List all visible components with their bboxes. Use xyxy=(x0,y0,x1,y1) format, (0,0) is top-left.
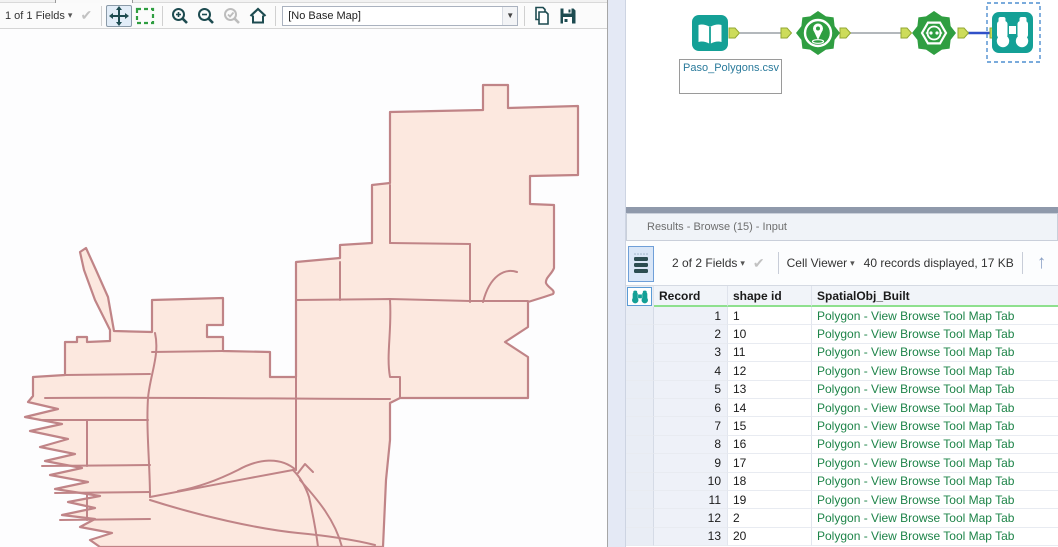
zoom-out-icon xyxy=(196,6,216,26)
chevron-down-icon[interactable]: ▾ xyxy=(68,10,73,21)
fields-dropdown-label[interactable]: 1 of 1 Fields xyxy=(5,10,65,22)
table-cell: 4 xyxy=(654,362,728,380)
table-cell xyxy=(626,325,654,343)
home-icon xyxy=(248,6,268,26)
results-toolbar: 2 of 2 Fields ▾ ✔ Cell Viewer ▾ 40 recor… xyxy=(626,241,1058,286)
polygon-map xyxy=(0,29,607,547)
basemap-value: [No Base Map] xyxy=(283,10,361,22)
toolbar-separator xyxy=(524,6,525,26)
table-cell: 3 xyxy=(654,344,728,362)
table-cell xyxy=(626,344,654,362)
table-cell xyxy=(626,307,654,325)
spatial-link-cell[interactable]: Polygon - View Browse Tool Map Tab xyxy=(812,491,1058,509)
table-cell: 1 xyxy=(654,307,728,325)
basemap-dropdown[interactable]: [No Base Map] ▼ xyxy=(282,6,518,26)
spatial-link-cell[interactable]: Polygon - View Browse Tool Map Tab xyxy=(812,436,1058,454)
table-cell: 18 xyxy=(728,473,812,491)
spatial-link-cell[interactable]: Polygon - View Browse Tool Map Tab xyxy=(812,381,1058,399)
chevron-down-icon[interactable]: ▼ xyxy=(502,7,517,25)
save-button[interactable] xyxy=(555,5,581,27)
table-cell: 2 xyxy=(654,325,728,343)
table-cell: 5 xyxy=(654,381,728,399)
records-view-icon xyxy=(633,252,649,276)
table-cell: 16 xyxy=(728,436,812,454)
chevron-down-icon[interactable]: ▾ xyxy=(740,258,745,269)
table-cell: 1 xyxy=(728,307,812,325)
results-title: Results - Browse (15) - Input xyxy=(627,221,787,233)
results-table: Record shape id SpatialObj_Built 11Polyg… xyxy=(626,286,1058,547)
zoom-out-button[interactable] xyxy=(193,5,219,27)
column-header-record[interactable]: Record xyxy=(654,286,728,307)
copy-icon xyxy=(532,6,552,26)
table-cell: 2 xyxy=(728,509,812,527)
workflow-canvas[interactable]: Paso_Polygons.csv xyxy=(626,0,1058,207)
spatial-link-cell[interactable]: Polygon - View Browse Tool Map Tab xyxy=(812,509,1058,527)
table-cell: 15 xyxy=(728,417,812,435)
save-icon xyxy=(558,6,578,26)
table-cell xyxy=(626,454,654,472)
pan-tool-button[interactable] xyxy=(106,5,132,27)
output-anchor[interactable] xyxy=(729,28,740,38)
table-cell: 10 xyxy=(728,325,812,343)
table-cell: 20 xyxy=(728,528,812,546)
results-table-body: 11Polygon - View Browse Tool Map Tab210P… xyxy=(626,307,1058,546)
zoom-selection-button[interactable] xyxy=(132,5,158,27)
table-cell: 7 xyxy=(654,417,728,435)
spatial-link-cell[interactable]: Polygon - View Browse Tool Map Tab xyxy=(812,307,1058,325)
table-cell: 8 xyxy=(654,436,728,454)
copy-button[interactable] xyxy=(529,5,555,27)
table-cell xyxy=(626,399,654,417)
zoom-extent-icon xyxy=(222,6,242,26)
map-toolbar: 1 of 1 Fields ▾ ✔ xyxy=(0,3,607,29)
map-view[interactable] xyxy=(0,29,607,547)
apply-check-icon: ✔ xyxy=(753,255,765,272)
column-header-spatialobj[interactable]: SpatialObj_Built xyxy=(812,286,1058,307)
browse-gutter-button[interactable] xyxy=(627,287,652,306)
input-anchor[interactable] xyxy=(781,28,792,38)
table-cell: 11 xyxy=(654,491,728,509)
toolbar-separator xyxy=(1022,252,1023,274)
table-cell xyxy=(626,362,654,380)
panel-divider[interactable] xyxy=(608,0,626,547)
table-header-row: Record shape id SpatialObj_Built xyxy=(626,286,1058,307)
table-cell: 9 xyxy=(654,454,728,472)
spatial-link-cell[interactable]: Polygon - View Browse Tool Map Tab xyxy=(812,454,1058,472)
toolbar-separator xyxy=(275,6,276,26)
spatial-link-cell[interactable]: Polygon - View Browse Tool Map Tab xyxy=(812,325,1058,343)
table-cell: 12 xyxy=(728,362,812,380)
poly-build-tool[interactable] xyxy=(912,11,956,55)
table-cell xyxy=(626,491,654,509)
browse-tool[interactable] xyxy=(987,3,1040,62)
table-cell xyxy=(626,381,654,399)
zoom-extent-button[interactable] xyxy=(219,5,245,27)
zoom-in-icon xyxy=(170,6,190,26)
home-button[interactable] xyxy=(245,5,271,27)
table-cell xyxy=(626,436,654,454)
app-window: 1 of 1 Fields ▾ ✔ xyxy=(0,0,1058,547)
spatial-link-cell[interactable]: Polygon - View Browse Tool Map Tab xyxy=(812,473,1058,491)
table-cell: 17 xyxy=(728,454,812,472)
spatial-link-cell[interactable]: Polygon - View Browse Tool Map Tab xyxy=(812,417,1058,435)
input-anchor[interactable] xyxy=(901,28,912,38)
table-view-toggle[interactable] xyxy=(628,246,654,282)
scroll-top-button[interactable]: ↑ xyxy=(1037,252,1047,274)
table-cell: 19 xyxy=(728,491,812,509)
map-panel: 1 of 1 Fields ▾ ✔ xyxy=(0,0,608,547)
records-summary: 40 records displayed, 17 KB xyxy=(864,256,1014,270)
create-points-tool[interactable] xyxy=(796,11,840,55)
table-cell xyxy=(626,509,654,527)
table-cell: 13 xyxy=(654,528,728,546)
toolbar-separator xyxy=(101,6,102,26)
spatial-link-cell[interactable]: Polygon - View Browse Tool Map Tab xyxy=(812,528,1058,546)
output-anchor[interactable] xyxy=(840,28,851,38)
table-cell: 11 xyxy=(728,344,812,362)
column-header-shape-id[interactable]: shape id xyxy=(728,286,812,307)
fields-dropdown-label[interactable]: 2 of 2 Fields xyxy=(672,256,737,270)
input-data-tool[interactable] xyxy=(692,15,728,51)
results-title-bar: Results - Browse (15) - Input xyxy=(626,213,1058,241)
binoculars-icon xyxy=(631,290,649,304)
cell-viewer-dropdown[interactable]: Cell Viewer xyxy=(787,256,847,270)
book-icon xyxy=(699,25,722,44)
marquee-zoom-icon xyxy=(135,7,155,25)
table-cell: 6 xyxy=(654,399,728,417)
toolbar-separator xyxy=(162,6,163,26)
spatial-link-cell[interactable]: Polygon - View Browse Tool Map Tab xyxy=(812,399,1058,417)
table-cell: 14 xyxy=(728,399,812,417)
table-cell: 12 xyxy=(654,509,728,527)
output-anchor[interactable] xyxy=(958,28,969,38)
table-cell xyxy=(626,417,654,435)
table-cell: 10 xyxy=(654,473,728,491)
results-panel: Results - Browse (15) - Input 2 of 2 Fie… xyxy=(626,207,1058,547)
table-cell xyxy=(626,473,654,491)
spatial-link-cell[interactable]: Polygon - View Browse Tool Map Tab xyxy=(812,344,1058,362)
table-cell: 13 xyxy=(728,381,812,399)
city-outer-boundary xyxy=(25,85,578,547)
apply-check-icon: ✔ xyxy=(80,7,92,24)
workflow-graph xyxy=(626,0,1058,207)
toolbar-separator xyxy=(778,252,779,274)
gutter-header-cell xyxy=(626,286,654,307)
tool-annotation[interactable]: Paso_Polygons.csv xyxy=(679,59,782,94)
pan-icon xyxy=(109,6,129,26)
spatial-link-cell[interactable]: Polygon - View Browse Tool Map Tab xyxy=(812,362,1058,380)
zoom-in-button[interactable] xyxy=(167,5,193,27)
table-cell xyxy=(626,528,654,546)
chevron-down-icon[interactable]: ▾ xyxy=(850,258,855,269)
